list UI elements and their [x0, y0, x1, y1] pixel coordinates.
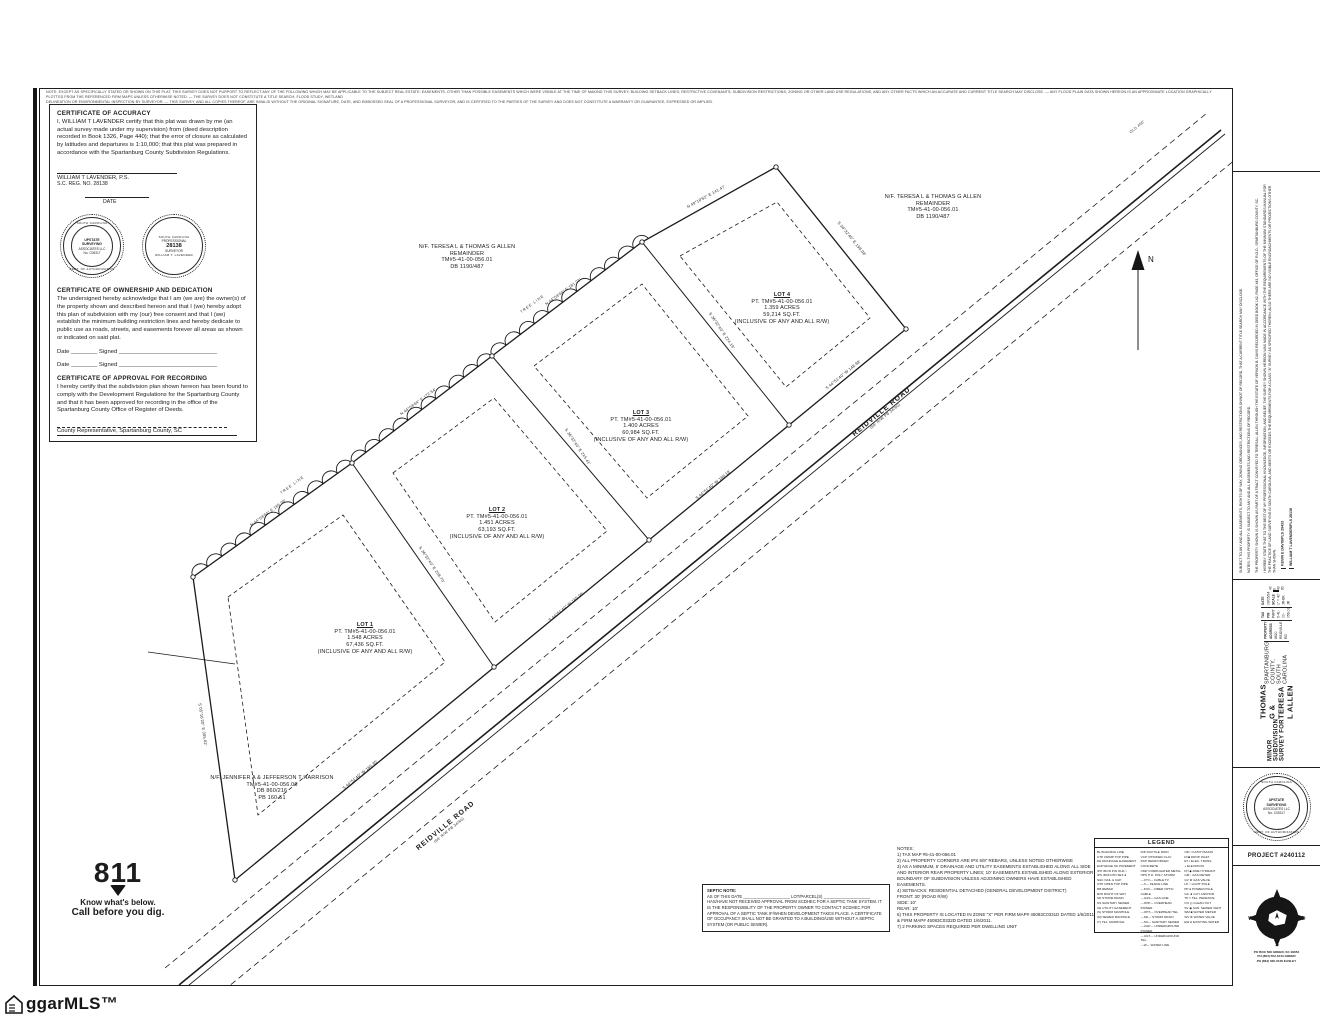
legend-column-3: CB □ CATCH BASIN DI ■ DROP INLET ET ▪ EL… [1184, 850, 1226, 947]
lot-2-label: LOT 2 PT. TM#5-41-00-056.01 1.451 ACRES … [422, 507, 572, 541]
graphic-scale-bar [1274, 590, 1280, 592]
date-signed-line-2: Date ________ Signed ___________________… [57, 362, 249, 368]
lot-1-name: LOT 1 [290, 622, 440, 629]
property-address: PROPERTY ADDRESS 8620 REIDVILLE RD [1264, 621, 1290, 641]
project-number: PROJECT #240112 [1233, 846, 1320, 866]
811-number: 811 [58, 860, 178, 885]
firm-seal: SOUTH CAROLINA UPSTATE SURVEYING ASSOCIA… [1246, 776, 1308, 838]
title-block-main: MINOR SUBDIVISION SURVEY FOR THOMAS G & … [1233, 580, 1320, 768]
signature-line [57, 173, 177, 174]
client-name: THOMAS G & TERESA L ALLEN [1259, 684, 1295, 719]
mls-watermark: ggarMLS™ [3, 993, 118, 1015]
legend-column-2: DIP DUCTILE IRON VCP VITRIFIED CLAY RCP … [1141, 850, 1183, 947]
title-block-empty-box [1233, 88, 1320, 172]
adjoiner-allen-label-west: N/F. TERESA L & THOMAS G ALLEN REMAINDER… [382, 244, 552, 271]
call-811-logo: 811 Know what's below. Call before you d… [58, 860, 178, 918]
north-label: N [1148, 255, 1154, 264]
legend-column-1: BL BUILDING LINE CTP CRIMP TOP PIPE DE D… [1097, 850, 1139, 947]
surveyor-seal: SOUTH CAROLINA PROFESSIONAL 28138 SURVEY… [145, 217, 203, 275]
svg-text:W: W [1248, 915, 1253, 921]
house-icon [3, 993, 25, 1015]
certificate-approval-body: I hereby certify that the subdivision pl… [57, 384, 249, 415]
adjoiner-allen-label-east: N/F. TERESA L & THOMAS G ALLEN REMAINDER… [848, 194, 1018, 221]
legend-title: LEGEND [1095, 839, 1228, 848]
legend: LEGEND BL BUILDING LINE CTP CRIMP TOP PI… [1094, 838, 1229, 933]
general-notes: NOTES: 1) TAX MAP #5-41-00-056.01 2) ALL… [897, 846, 1095, 930]
graphic-scale-ticks: 40 0 40 80 [1269, 586, 1285, 590]
pls-signer-2: WILLIAM T LAVENDER/PLS 28138 [1289, 178, 1294, 569]
date-scale: DATE 09/05/24 SCALE 1" = 40' JR-BK JR [1261, 592, 1292, 608]
binding-edge-bar [33, 88, 37, 986]
certificate-ownership-title: CERTIFICATE OF OWNERSHIP AND DEDICATION [57, 287, 249, 294]
lot-4-label: LOT 4 PT. TM#5-41-00-056.01 1.359 ACRES … [707, 292, 857, 326]
road-rw-line-near [165, 113, 1207, 968]
svg-text:S: S [1275, 942, 1279, 947]
lot-3-label: LOT 3 PT. TM#5-41-00-056.01 1.400 ACRES … [566, 410, 716, 444]
svg-text:E: E [1301, 915, 1305, 921]
lot-2-name: LOT 2 [422, 507, 572, 514]
lot-1-label: LOT 1 PT. TM#5-41-00-056.01 1.548 ACRES … [290, 622, 440, 656]
mls-watermark-text: ggarMLS™ [26, 994, 118, 1014]
pls-signer-1: KEVIN E DAVIS/PLS 29433 [1281, 178, 1286, 569]
company-contact: PO BOX 568 GREER, SC 29652 PH (864) 552-… [1254, 950, 1299, 964]
seals-row: SOUTH CAROLINA UPSTATE SURVEYING ASSOCIA… [63, 217, 249, 275]
adjoiner-boundary-line [148, 652, 235, 664]
title-block-legal-notes: SUBJECT TO ANY AND ALL EASEMENTS, RIGHTS… [1233, 172, 1320, 580]
certificate-accuracy-title: CERTIFICATE OF ACCURACY [57, 110, 249, 117]
lot-3-name: LOT 3 [566, 410, 716, 417]
certificate-approval-title: CERTIFICATE OF APPROVAL FOR RECORDING [57, 375, 249, 382]
svg-text:N: N [1275, 892, 1279, 898]
county-representative-line: County Representative, Spartanburg Count… [57, 428, 237, 436]
upstate-surveying-compass-logo: N S W E [1248, 889, 1306, 947]
certificate-ownership-body: The undersigned hereby acknowledge that … [57, 296, 249, 342]
title-block: SUBJECT TO ANY AND ALL EASEMENTS, RIGHTS… [1232, 88, 1320, 986]
county-state: SPARTANBURG COUNTY, SOUTH CAROLINA [1265, 642, 1289, 684]
tree-line [192, 235, 648, 577]
septic-note-box: SEPTIC NOTE: AS OF THIS DATE ___________… [702, 884, 890, 932]
date-signed-line-1: Date ________ Signed ___________________… [57, 349, 249, 355]
certificate-accuracy-body: I, WILLIAM T LAVENDER certify that this … [57, 119, 249, 157]
north-arrow-icon [1132, 250, 1145, 350]
title-block-seal-box: SOUTH CAROLINA UPSTATE SURVEYING ASSOCIA… [1233, 768, 1320, 846]
tax-pin: TAX PIN PART 5-41-00-056.01 [1261, 608, 1292, 621]
certificates-panel: CERTIFICATE OF ACCURACY I, WILLIAM T LAV… [49, 104, 257, 442]
lot-4-name: LOT 4 [707, 292, 857, 299]
company-logo-box: N S W E PO BOX 568 GREER, SC 29652 PH (8… [1233, 866, 1320, 986]
firm-seal: SOUTH CAROLINA UPSTATE SURVEYING ASSOCIA… [63, 217, 121, 275]
survey-title: MINOR SUBDIVISION SURVEY FOR [1268, 719, 1286, 761]
